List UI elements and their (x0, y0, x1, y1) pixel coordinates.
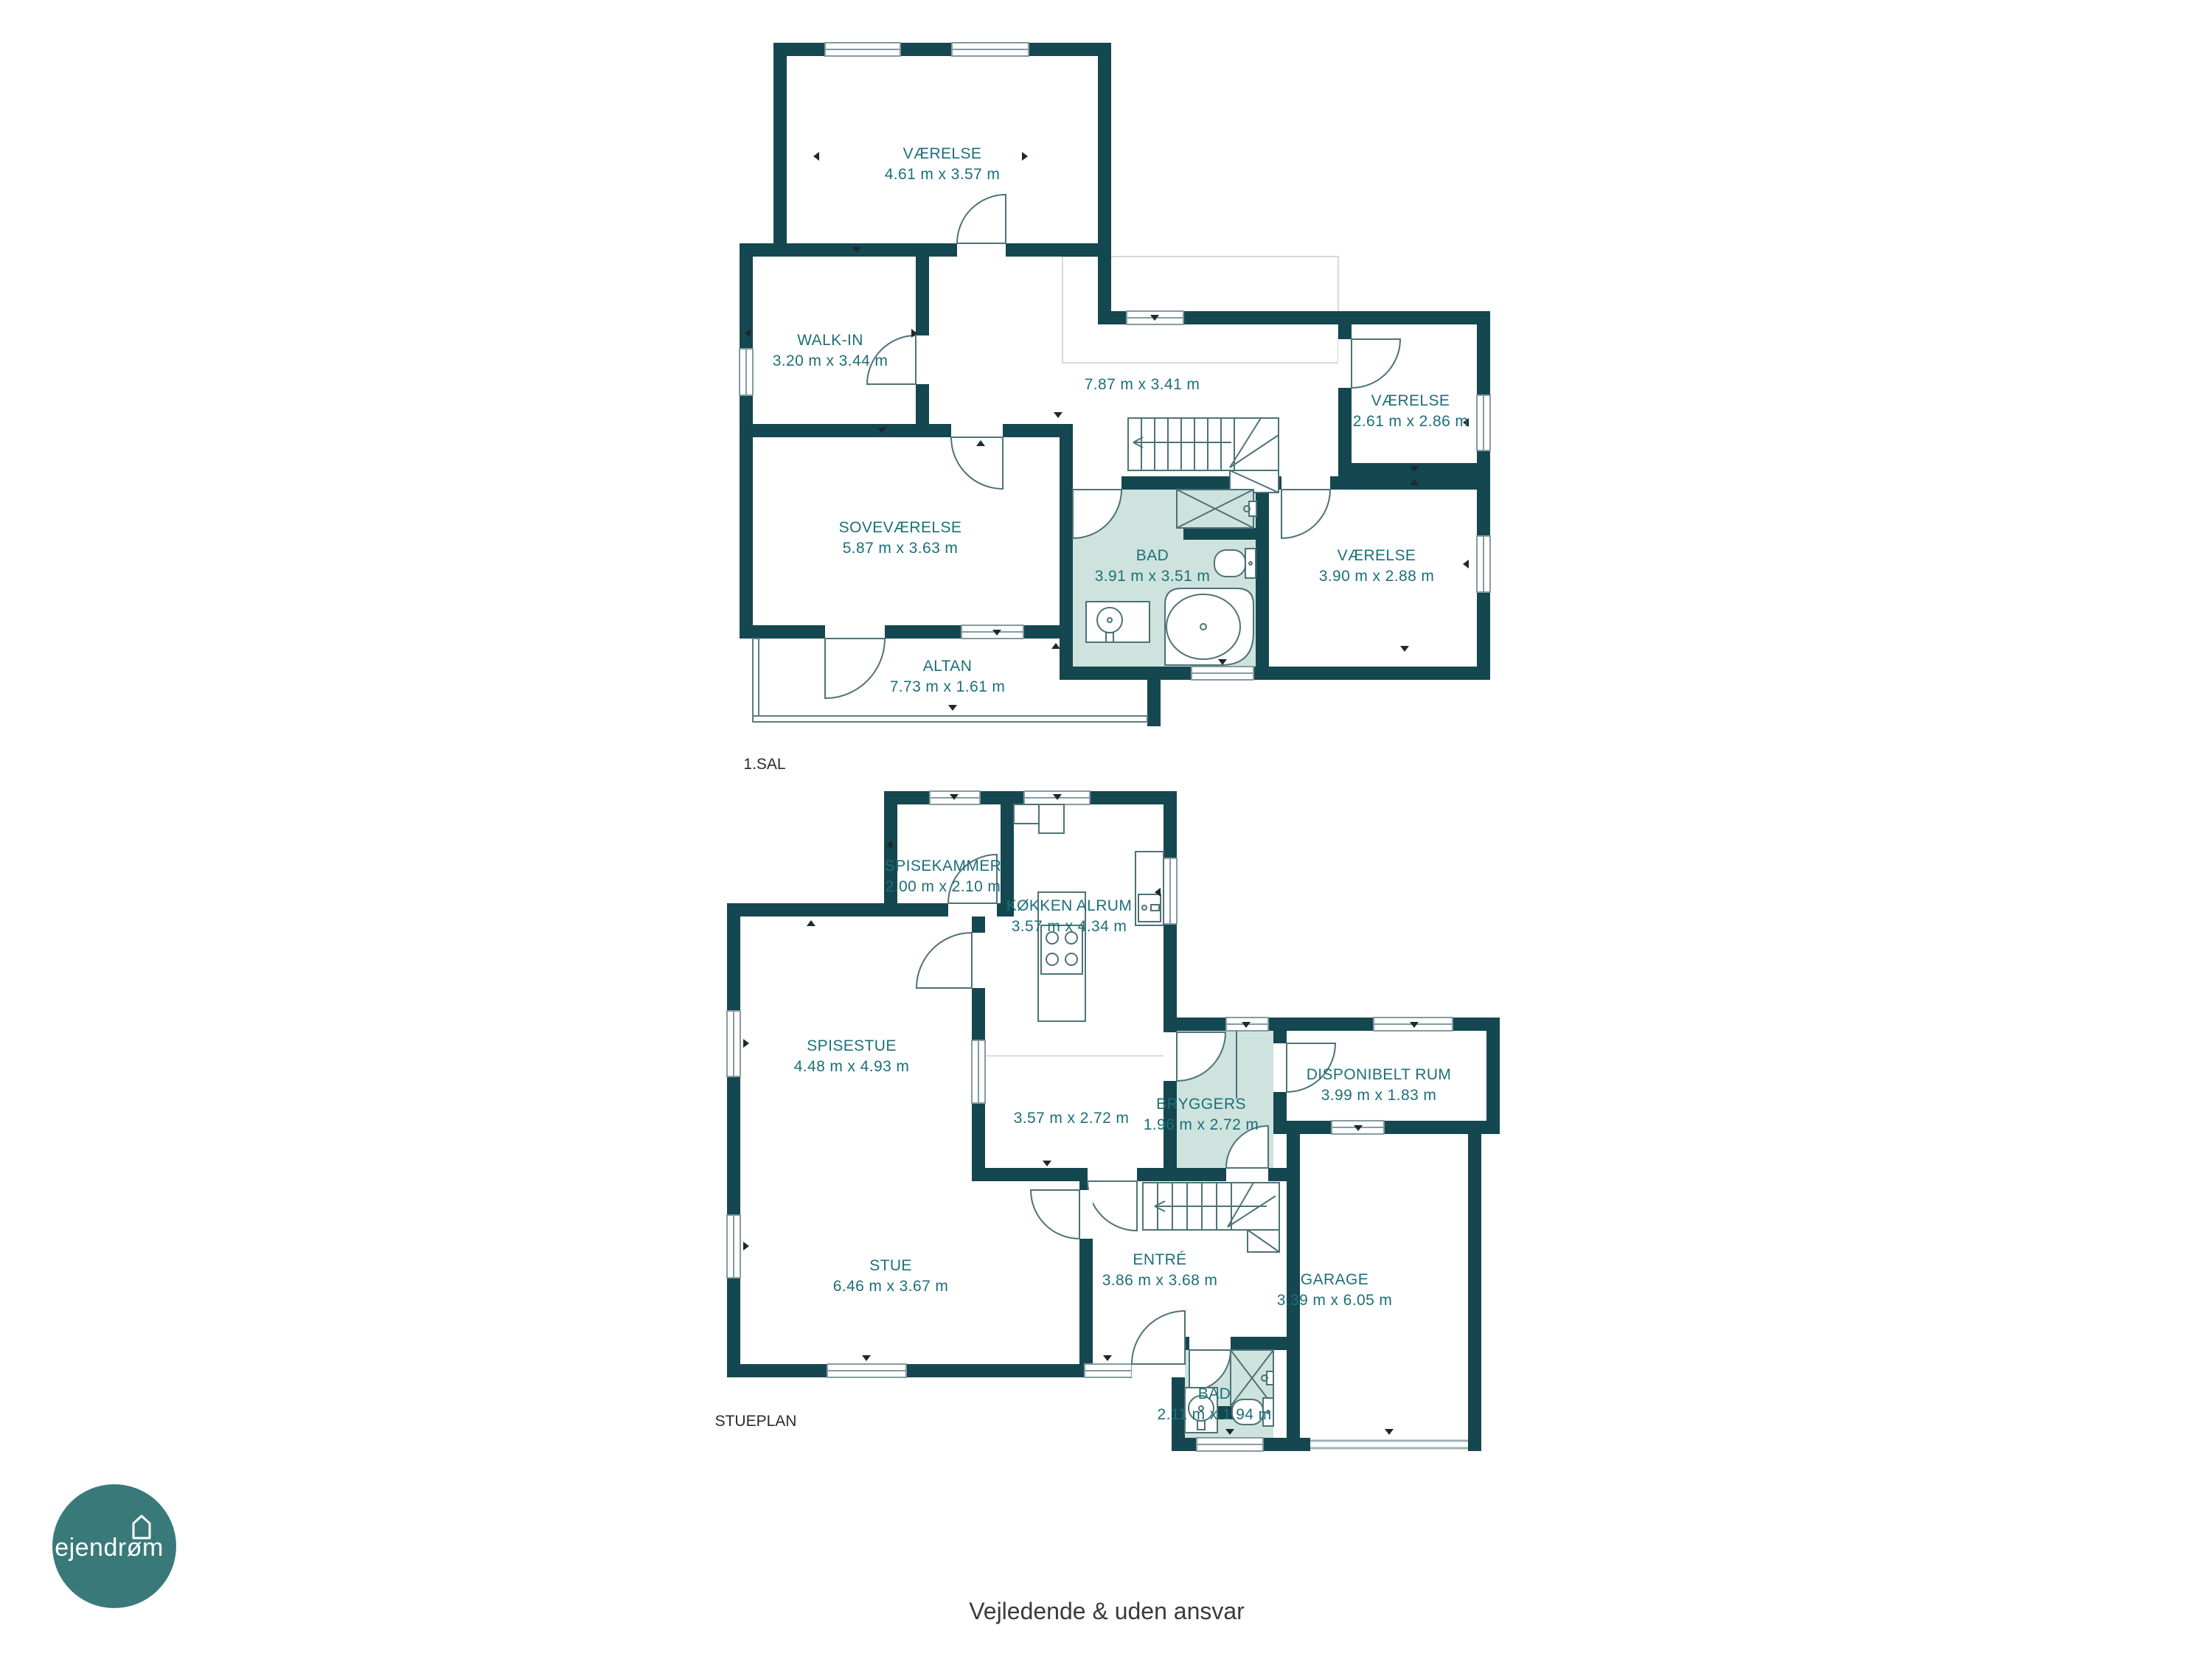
bathtub-icon (1165, 588, 1253, 665)
room-label-vaerelse-nw: VÆRELSE (903, 145, 982, 162)
sink-icon (1086, 602, 1150, 642)
room-label-koekken: KØKKEN ALRUM (1006, 897, 1133, 914)
room-label-garage: GARAGE (1301, 1271, 1368, 1288)
room-label-vaerelse-e: VÆRELSE (1338, 547, 1416, 564)
room-dims-bad-1: 3.91 m x 3.51 m (1095, 568, 1211, 585)
room-dims-spisekammer: 2.00 m x 2.10 m (886, 878, 1001, 895)
room-labels: SPISEKAMMER 2.00 m x 2.10 m KØKKEN ALRUM… (794, 858, 1452, 1423)
room-label-altan: ALTAN (923, 658, 973, 675)
room-dims-spisestue: 4.48 m x 4.93 m (794, 1058, 910, 1075)
counter-icon (1039, 804, 1064, 833)
floor-label-first: 1.SAL (743, 756, 785, 773)
toilet-icon (1214, 549, 1256, 578)
room-dims-sovevaerelse: 5.87 m x 3.63 m (843, 540, 959, 557)
room-label-bad-2: BAD (1198, 1385, 1231, 1402)
room-dims-gang: 3.57 m x 2.72 m (1014, 1110, 1130, 1127)
floorplan-drawing: VÆRELSE 4.61 m x 3.57 m WALK-IN 3.20 m x… (0, 0, 2212, 1659)
room-label-disponibelt: DISPONIBELT RUM (1307, 1066, 1452, 1083)
garage-door (1310, 1438, 1468, 1451)
room-label-spisestue: SPISESTUE (807, 1037, 896, 1054)
room-label-walk-in: WALK-IN (797, 332, 863, 349)
room-label-spisekammer: SPISEKAMMER (885, 858, 1001, 874)
room-label-bryggers: BRYGGERS (1156, 1096, 1246, 1113)
room-dims-koekken: 3.57 m x 4.34 m (1012, 918, 1127, 935)
room-label-stue: STUE (869, 1257, 912, 1274)
room-dims-bad-2: 2.11 m x 1.94 m (1157, 1406, 1271, 1423)
room-dims-altan: 7.73 m x 1.61 m (890, 678, 1006, 695)
room-dims-vaerelse-nw: 4.61 m x 3.57 m (885, 166, 1001, 183)
brand-logo: ejendrøm (52, 1484, 176, 1608)
room-dims-hall: 7.87 m x 3.41 m (1085, 376, 1200, 393)
footer-disclaimer: Vejledende & uden ansvar (969, 1598, 1245, 1624)
first-floor-plan: VÆRELSE 4.61 m x 3.57 m WALK-IN 3.20 m x… (740, 43, 1490, 773)
room-dims-entre: 3.86 m x 3.68 m (1102, 1272, 1218, 1289)
room-label-vaerelse-ne: VÆRELSE (1371, 392, 1450, 409)
counter-icon (1014, 804, 1039, 824)
room-dims-bryggers: 1.96 m x 2.72 m (1144, 1116, 1259, 1133)
room-dims-disponibelt: 3.99 m x 1.83 m (1321, 1087, 1437, 1104)
room-dims-stue: 6.46 m x 3.67 m (833, 1278, 949, 1295)
appliance-icon (1135, 852, 1164, 925)
floorplan-canvas: VÆRELSE 4.61 m x 3.57 m WALK-IN 3.20 m x… (0, 0, 2212, 1659)
room-dims-walk-in: 3.20 m x 3.44 m (773, 352, 888, 369)
room-label-entre: ENTRÉ (1133, 1251, 1186, 1268)
stairs-icon (1143, 1183, 1279, 1252)
room-dims-garage: 3.39 m x 6.05 m (1277, 1292, 1393, 1309)
room-label-bad-1: BAD (1136, 547, 1169, 564)
room-dims-vaerelse-e: 3.90 m x 2.88 m (1319, 568, 1435, 585)
room-label-sovevaerelse: SOVEVÆRELSE (839, 519, 962, 536)
shower-icon (1177, 490, 1256, 528)
floor-label-ground: STUEPLAN (715, 1413, 797, 1430)
ground-floor-plan: SPISEKAMMER 2.00 m x 2.10 m KØKKEN ALRUM… (715, 791, 1500, 1451)
room-dims-vaerelse-ne: 2.61 m x 2.86 m (1353, 413, 1469, 430)
